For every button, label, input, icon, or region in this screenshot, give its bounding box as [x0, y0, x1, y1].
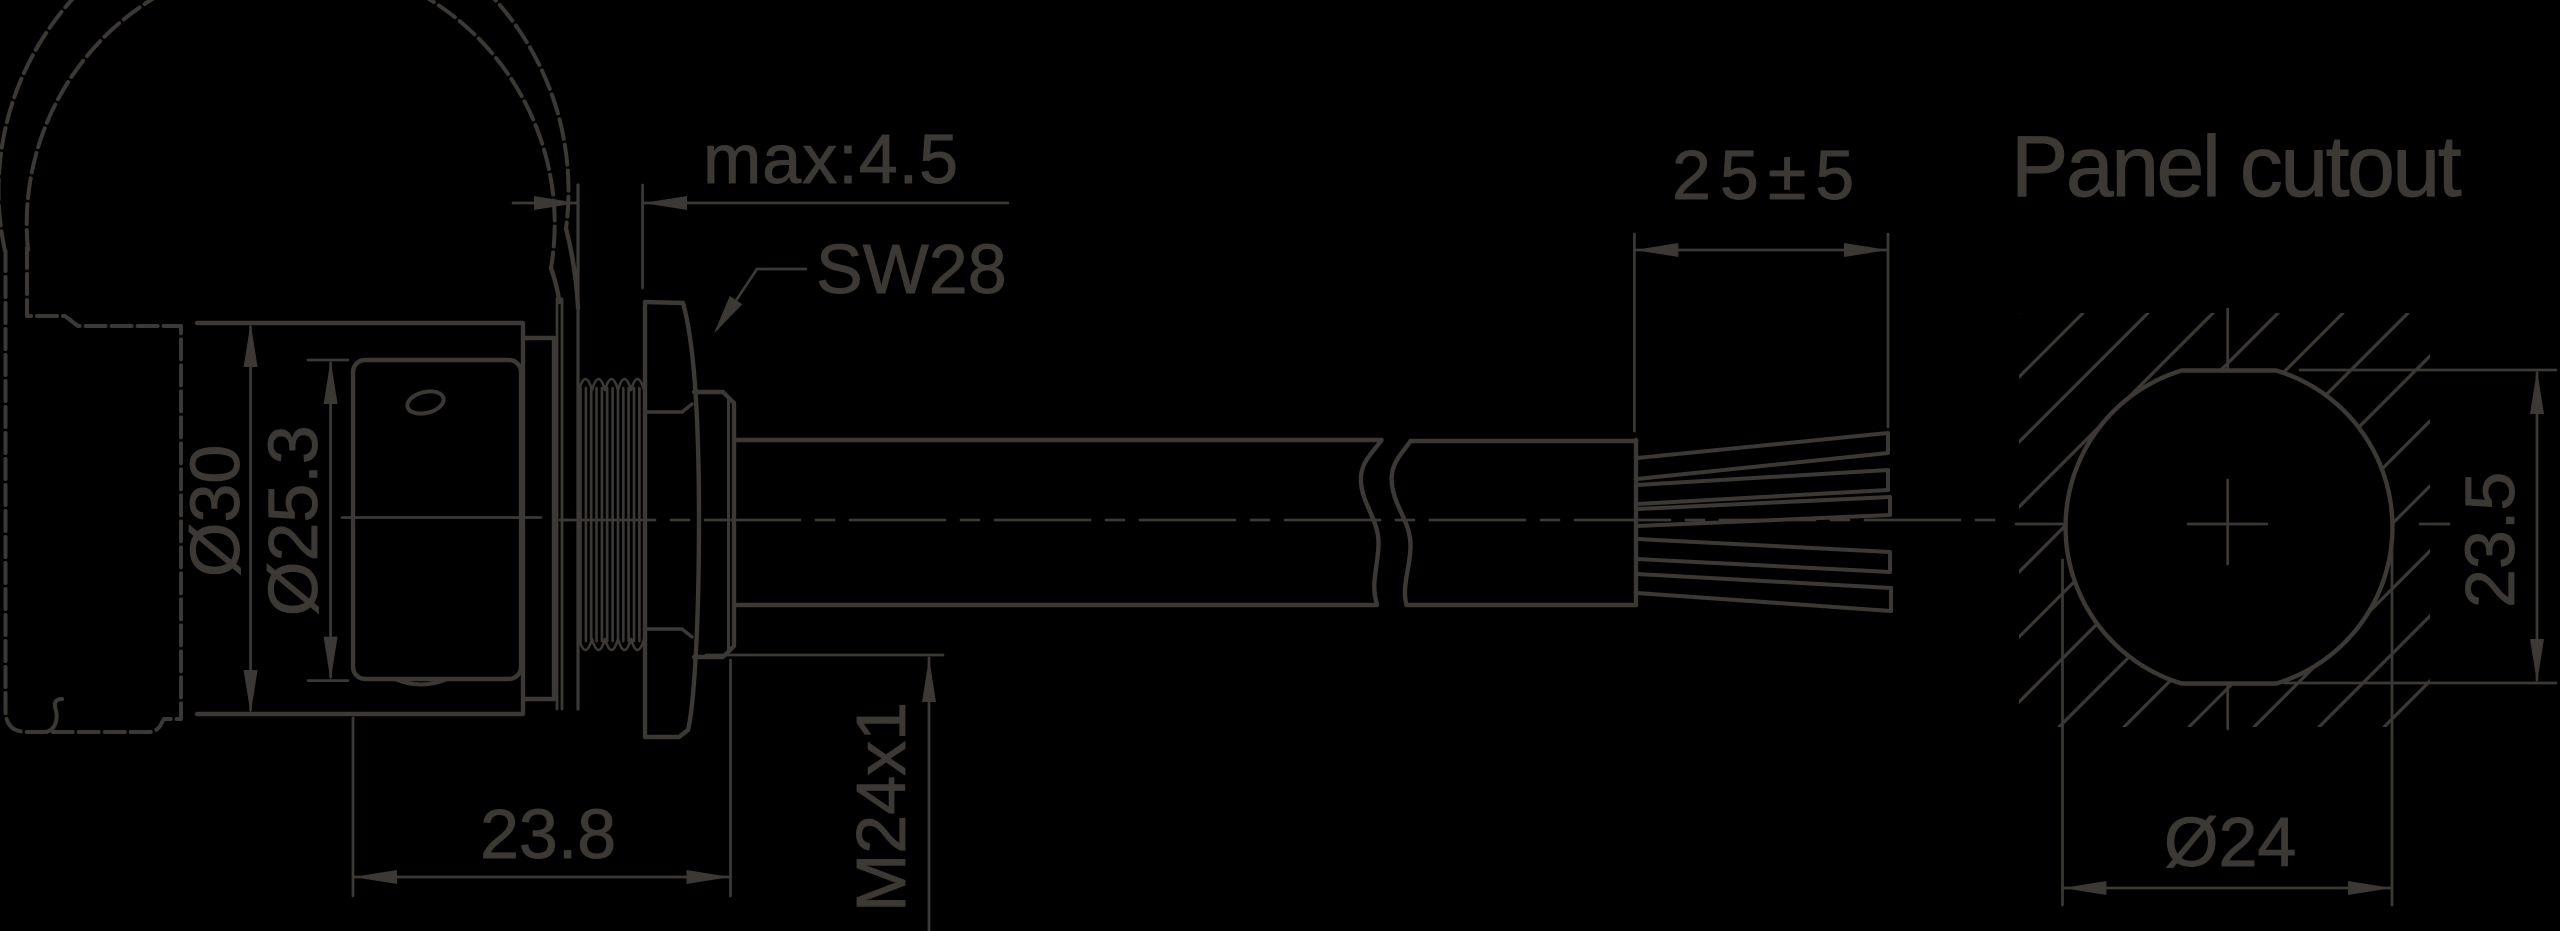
- svg-text:SW28: SW28: [816, 230, 1007, 308]
- svg-text:max:4.5: max:4.5: [703, 120, 959, 198]
- svg-text:Ø24: Ø24: [2164, 803, 2296, 881]
- svg-text:Panel cutout: Panel cutout: [2011, 119, 2462, 215]
- svg-text:Ø30: Ø30: [176, 445, 254, 577]
- svg-text:23.8: 23.8: [480, 795, 616, 873]
- svg-text:M24x1: M24x1: [842, 702, 920, 912]
- svg-text:25±5: 25±5: [1672, 136, 1863, 214]
- svg-text:23.5: 23.5: [2451, 472, 2529, 608]
- svg-text:Ø25.3: Ø25.3: [254, 425, 332, 616]
